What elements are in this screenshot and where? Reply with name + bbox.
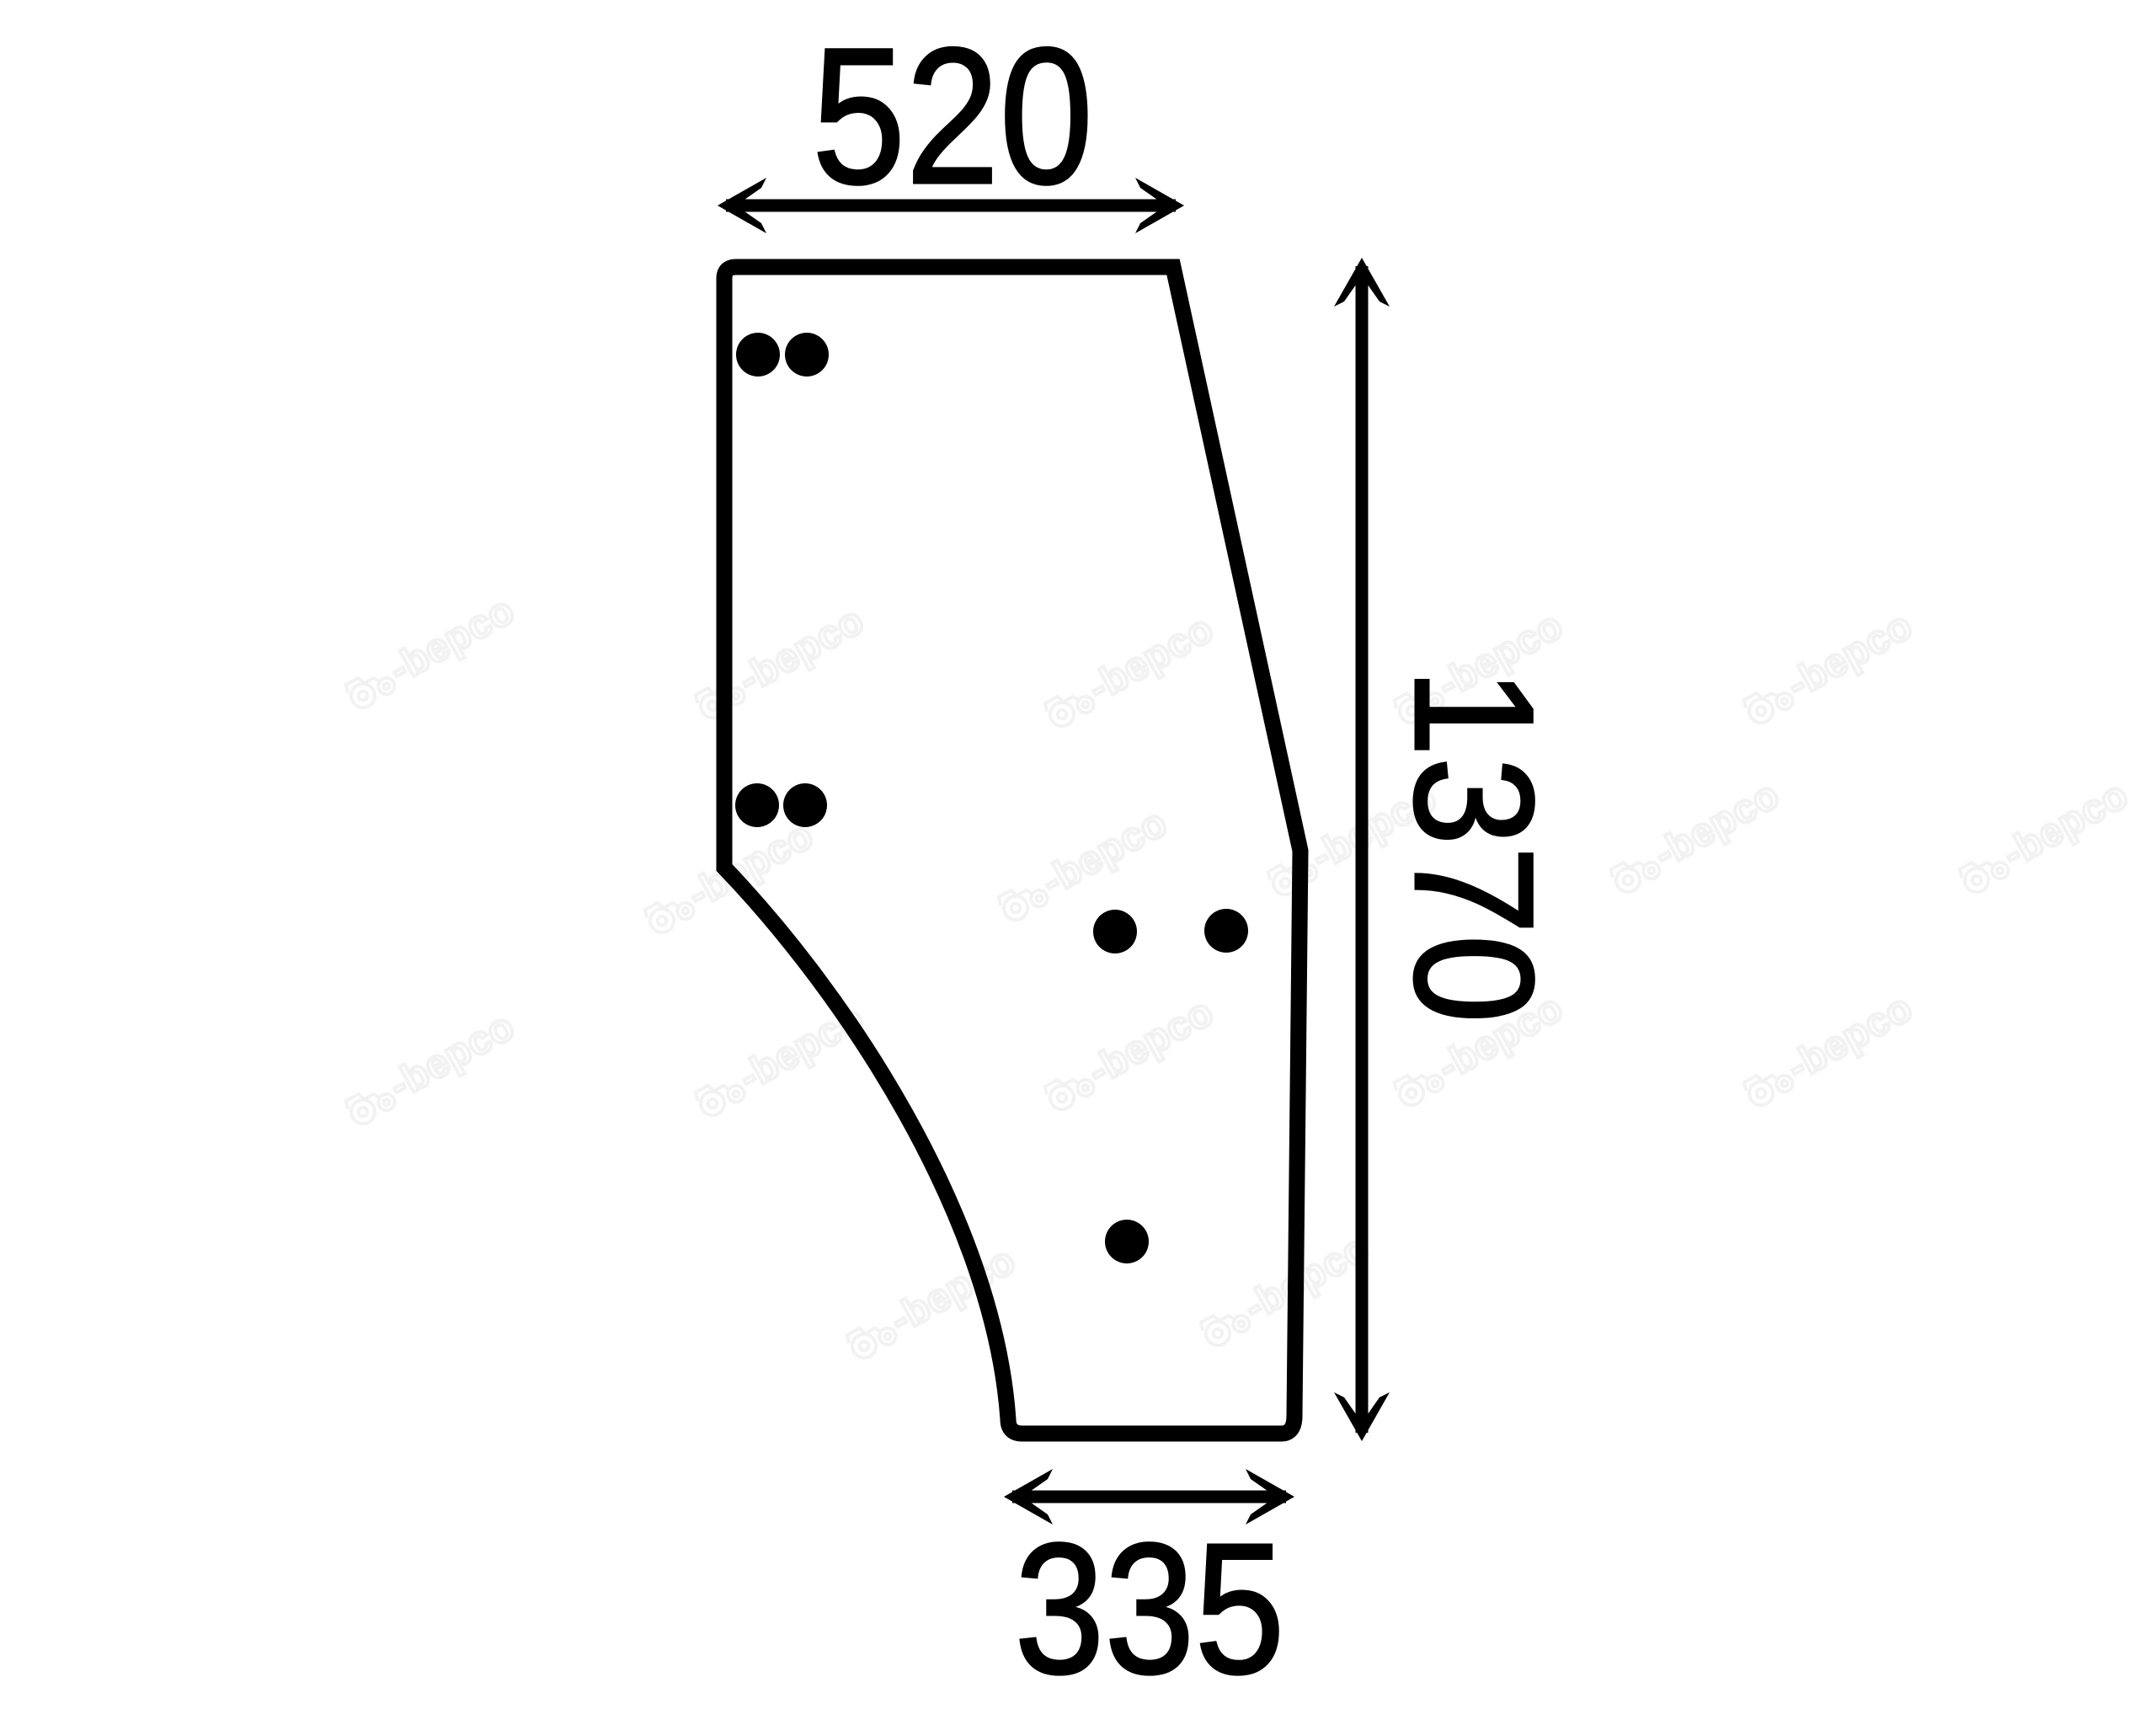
svg-text:1370: 1370 — [1380, 668, 1569, 1023]
svg-text:335: 335 — [1015, 1504, 1285, 1712]
svg-text:520: 520 — [812, 8, 1093, 224]
